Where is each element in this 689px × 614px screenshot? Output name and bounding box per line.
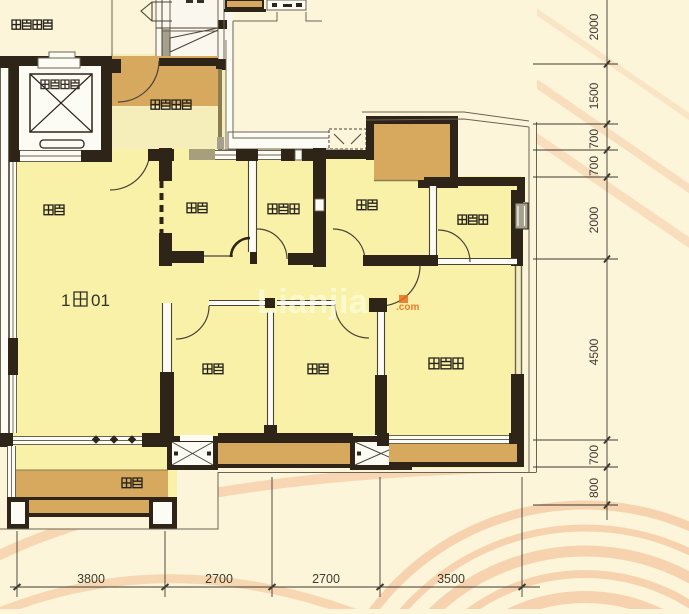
svg-text:3500: 3500 [437, 572, 465, 586]
svg-text:800: 800 [587, 478, 601, 498]
svg-text:3800: 3800 [77, 572, 105, 586]
svg-text:700: 700 [587, 156, 601, 176]
svg-text:2700: 2700 [205, 572, 233, 586]
svg-text:1500: 1500 [587, 82, 601, 109]
svg-text:2000: 2000 [587, 13, 601, 40]
svg-text:700: 700 [587, 129, 601, 149]
svg-text:1: 1 [61, 291, 70, 310]
svg-text:Lianjia: Lianjia [257, 283, 369, 321]
svg-text:2000: 2000 [587, 206, 601, 233]
svg-text:2700: 2700 [312, 572, 340, 586]
svg-text:.com: .com [396, 302, 419, 313]
svg-text:700: 700 [587, 445, 601, 465]
svg-text:01: 01 [91, 291, 110, 310]
svg-text:4500: 4500 [587, 338, 601, 365]
